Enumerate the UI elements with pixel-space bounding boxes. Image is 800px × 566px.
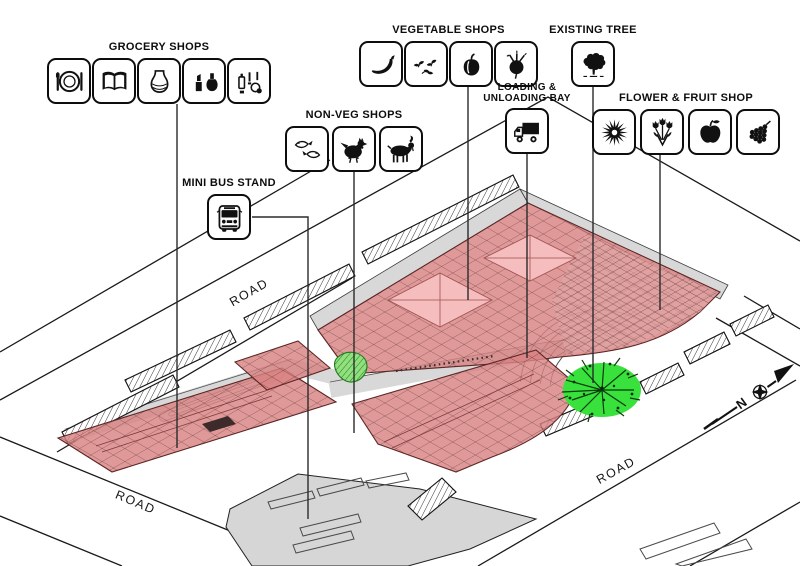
icon-box [227, 58, 271, 104]
dining-icon [53, 65, 86, 98]
legend-group-nonveg: NON-VEG SHOPS [285, 109, 423, 172]
parking-strip [640, 363, 684, 394]
sunflower-icon [598, 116, 631, 149]
icon-box [571, 41, 615, 87]
icon-box [332, 126, 376, 172]
bus-icon [213, 201, 246, 234]
road-label-top-left: ROAD [227, 276, 271, 309]
parking-strip [684, 332, 730, 364]
icon-box [640, 109, 684, 155]
legend-label: LOADING & UNLOADING BAY [477, 82, 577, 104]
legend-group-minibus: MINI BUS STAND [165, 177, 293, 240]
legend-group-grocery: GROCERY SHOPS [47, 41, 271, 104]
apple-icon [694, 116, 727, 149]
icon-box [688, 109, 732, 155]
toiletries-icon [233, 65, 266, 98]
book-icon [98, 65, 131, 98]
legend-label: NON-VEG SHOPS [285, 109, 423, 122]
cosmetics-icon [188, 65, 221, 98]
tree-icon [577, 48, 610, 81]
icon-box [449, 41, 493, 87]
icon-box [494, 41, 538, 87]
icon-box [404, 41, 448, 87]
icon-box [47, 58, 91, 104]
bell-pepper-icon [455, 48, 488, 81]
road-label-right: ROAD [594, 454, 638, 487]
flower-bouquet-icon [646, 116, 679, 149]
truck-icon [511, 115, 544, 148]
site-plan-page: ROAD ROAD ROAD N GROCERY SHOPS [0, 0, 800, 566]
fish-icon [291, 133, 324, 166]
icon-box [92, 58, 136, 104]
legend-label: EXISTING TREE [533, 24, 653, 37]
parking-bay [640, 523, 720, 559]
legend-group-vegetable: VEGETABLE SHOPS [359, 24, 538, 87]
road-edge [0, 516, 122, 566]
legend-group-loading: LOADING & UNLOADING BAY [477, 82, 577, 154]
vase-icon [143, 65, 176, 98]
icon-box [207, 194, 251, 240]
icon-box [182, 58, 226, 104]
parking-strip [730, 305, 774, 336]
north-arrow: N [704, 364, 794, 429]
north-arrowhead [774, 364, 794, 383]
icon-box [592, 109, 636, 155]
chili-icon [365, 48, 398, 81]
legend-group-existing-tree: EXISTING TREE [533, 24, 653, 87]
chicken-icon [338, 133, 371, 166]
legend-label: VEGETABLE SHOPS [359, 24, 538, 37]
north-label: N [733, 395, 749, 413]
road-edge [690, 502, 800, 566]
legend-label: FLOWER & FRUIT SHOP [592, 92, 780, 105]
legend-group-flower-fruit: FLOWER & FRUIT SHOP [592, 92, 780, 155]
leafy-greens-icon [410, 48, 443, 81]
legend-label: MINI BUS STAND [165, 177, 293, 190]
icon-box [379, 126, 423, 172]
beetroot-icon [500, 48, 533, 81]
icon-box [285, 126, 329, 172]
grapes-icon [742, 116, 775, 149]
icon-box [736, 109, 780, 155]
goat-icon [385, 133, 418, 166]
bus-stand-platform [226, 474, 536, 566]
icon-box [359, 41, 403, 87]
icon-box [137, 58, 181, 104]
icon-box [505, 108, 549, 154]
legend-label: GROCERY SHOPS [47, 41, 271, 54]
